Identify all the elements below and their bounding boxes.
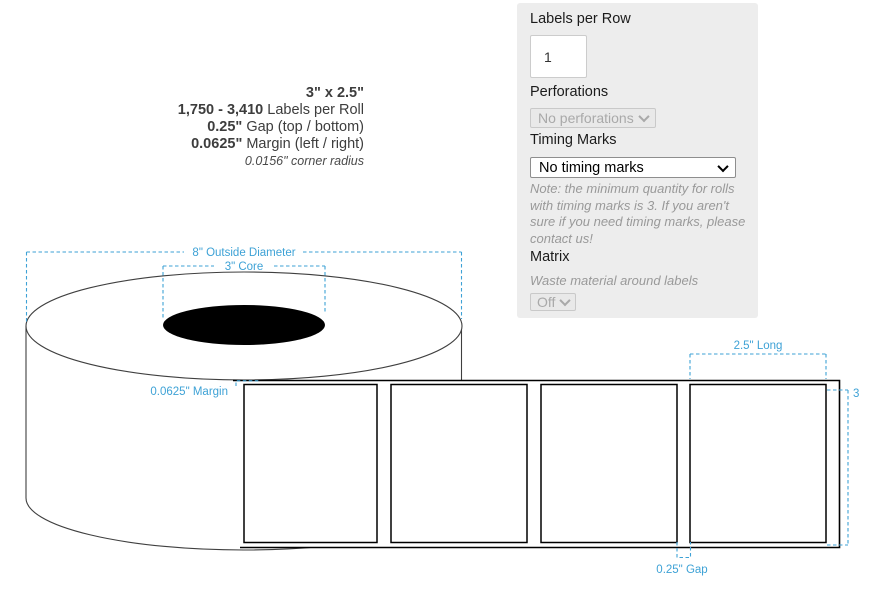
matrix-selected-value: Off xyxy=(537,294,555,310)
length-dim-line xyxy=(690,354,826,379)
spec-margin: 0.0625" Margin (left / right) xyxy=(178,136,364,153)
timing-marks-note: Note: the minimum quantity for rolls wit… xyxy=(530,181,748,247)
label-rect xyxy=(690,385,826,543)
outside-diameter-label: 8" Outside Diameter xyxy=(192,247,295,259)
label-rect xyxy=(244,385,377,543)
timing-marks-label: Timing Marks xyxy=(530,132,745,148)
roll-core xyxy=(163,305,325,345)
label-rect xyxy=(541,385,677,543)
label-specs: 3" x 2.5" 1,750 - 3,410 Labels per Roll … xyxy=(178,85,364,170)
perforations-label: Perforations xyxy=(530,84,745,100)
label-width-label: 3 xyxy=(853,388,859,400)
options-panel: Labels per Row Perforations No perforati… xyxy=(517,3,758,318)
spec-labels-per-roll: 1,750 - 3,410 Labels per Roll xyxy=(178,102,364,119)
spec-gap: 0.25" Gap (top / bottom) xyxy=(178,119,364,136)
label-rect xyxy=(391,385,527,543)
matrix-select[interactable]: Off xyxy=(530,293,576,311)
perforations-selected-value: No perforations xyxy=(538,110,634,126)
label-length-label: 2.5" Long xyxy=(734,340,783,352)
timing-marks-select[interactable]: No timing marks xyxy=(530,157,736,178)
labels-per-row-label: Labels per Row xyxy=(530,11,745,27)
matrix-label: Matrix xyxy=(530,249,745,265)
core-label: 3" Core xyxy=(225,261,264,273)
matrix-description: Waste material around labels xyxy=(530,273,745,288)
labels-per-row-input[interactable] xyxy=(530,35,587,78)
gap-label: 0.25" Gap xyxy=(656,564,707,576)
perforations-select[interactable]: No perforations xyxy=(530,108,656,128)
timing-marks-selected-value: No timing marks xyxy=(539,160,644,176)
label-configurator-page: 8" Outside Diameter 3" Core 0.0625" Marg… xyxy=(0,0,871,589)
chevron-down-icon xyxy=(560,295,571,306)
spec-corner-radius: 0.0156" corner radius xyxy=(178,153,364,170)
chevron-down-icon xyxy=(717,160,728,171)
spec-size: 3" x 2.5" xyxy=(178,85,364,102)
margin-label: 0.0625" Margin xyxy=(150,386,228,398)
chevron-down-icon xyxy=(638,111,649,122)
